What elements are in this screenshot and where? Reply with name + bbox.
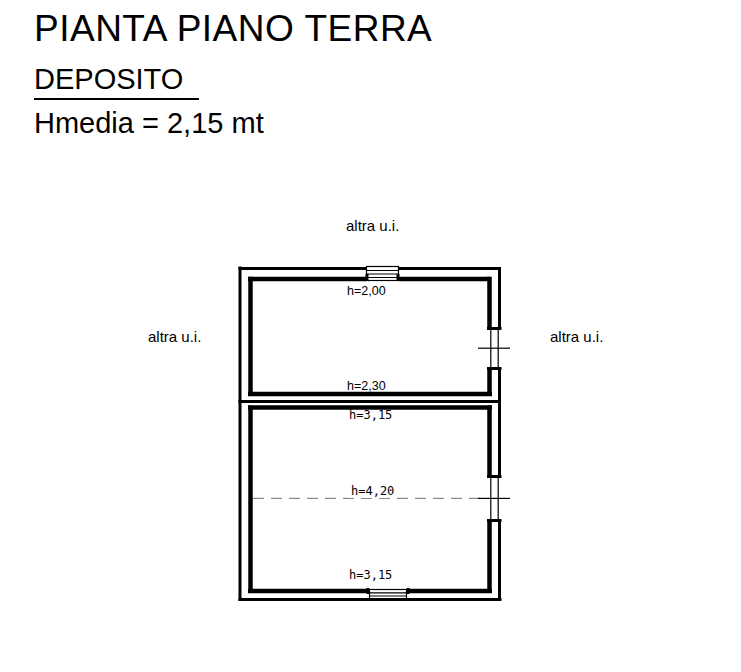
room2-inner-walls bbox=[248, 406, 492, 594]
window-right-room1-icon bbox=[478, 329, 510, 368]
height-label-room1-top: h=2,00 bbox=[347, 284, 386, 298]
height-label-room2-top: h=3,15 bbox=[349, 408, 392, 422]
height-label-room1-bottom: h=2,30 bbox=[347, 379, 386, 393]
height-label-room2-bottom: h=3,15 bbox=[349, 568, 392, 582]
window-top-icon bbox=[367, 267, 399, 281]
floor-plan-page: PIANTA PIANO TERRA DEPOSITO Hmedia = 2,1… bbox=[0, 0, 741, 672]
height-label-room2-middle: h=4,20 bbox=[349, 484, 396, 498]
window-right-room2-icon bbox=[478, 477, 510, 520]
wall-end-caps bbox=[367, 274, 502, 594]
outer-wall-lines bbox=[239, 267, 502, 602]
